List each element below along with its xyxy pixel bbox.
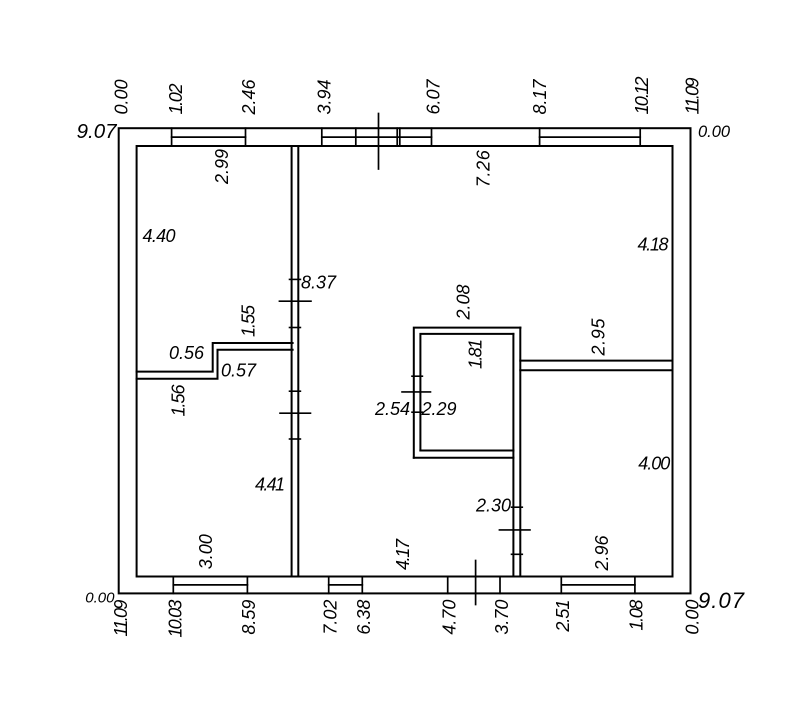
svg-text:10.03: 10.03 (165, 600, 185, 638)
svg-text:11.09: 11.09 (683, 78, 703, 115)
svg-text:2.99: 2.99 (212, 149, 232, 185)
svg-text:2.96: 2.96 (592, 534, 612, 571)
svg-text:7.26: 7.26 (474, 149, 494, 187)
svg-text:4.70: 4.70 (440, 600, 460, 635)
svg-text:0.00: 0.00 (85, 590, 115, 607)
svg-text:6.38: 6.38 (354, 600, 374, 635)
svg-text:4.40: 4.40 (143, 226, 176, 246)
svg-text:2.95: 2.95 (589, 318, 609, 357)
svg-text:10.12: 10.12 (632, 77, 652, 115)
svg-text:2.30: 2.30 (475, 496, 511, 516)
svg-text:3.70: 3.70 (492, 600, 512, 635)
svg-text:1.55: 1.55 (239, 304, 259, 337)
svg-text:1.08: 1.08 (627, 600, 647, 631)
svg-text:8.17: 8.17 (530, 78, 550, 114)
svg-text:1.56: 1.56 (169, 384, 189, 417)
svg-text:2.46: 2.46 (239, 78, 259, 115)
svg-text:2.29: 2.29 (421, 399, 457, 419)
svg-text:4.00: 4.00 (638, 454, 670, 474)
svg-text:0.56: 0.56 (169, 343, 205, 363)
svg-text:3.94: 3.94 (314, 79, 334, 114)
svg-text:8.59: 8.59 (239, 600, 259, 635)
svg-text:6.07: 6.07 (424, 78, 444, 114)
svg-text:1.81: 1.81 (466, 339, 486, 369)
svg-text:2.08: 2.08 (454, 284, 474, 320)
svg-text:4.17: 4.17 (393, 538, 413, 570)
svg-text:4.41: 4.41 (255, 474, 285, 494)
svg-text:2.54: 2.54 (374, 399, 410, 419)
svg-text:0.00: 0.00 (698, 123, 731, 141)
svg-text:2.51: 2.51 (553, 600, 573, 633)
svg-text:3.00: 3.00 (196, 534, 216, 569)
svg-text:1.02: 1.02 (166, 84, 186, 115)
svg-text:7.02: 7.02 (321, 600, 341, 635)
svg-text:0.00: 0.00 (112, 79, 132, 114)
svg-text:4.18: 4.18 (638, 235, 669, 255)
svg-text:8.37: 8.37 (301, 273, 337, 293)
svg-text:9.07: 9.07 (77, 120, 118, 143)
svg-text:0.57: 0.57 (221, 361, 257, 381)
svg-text:9.07: 9.07 (698, 588, 745, 613)
